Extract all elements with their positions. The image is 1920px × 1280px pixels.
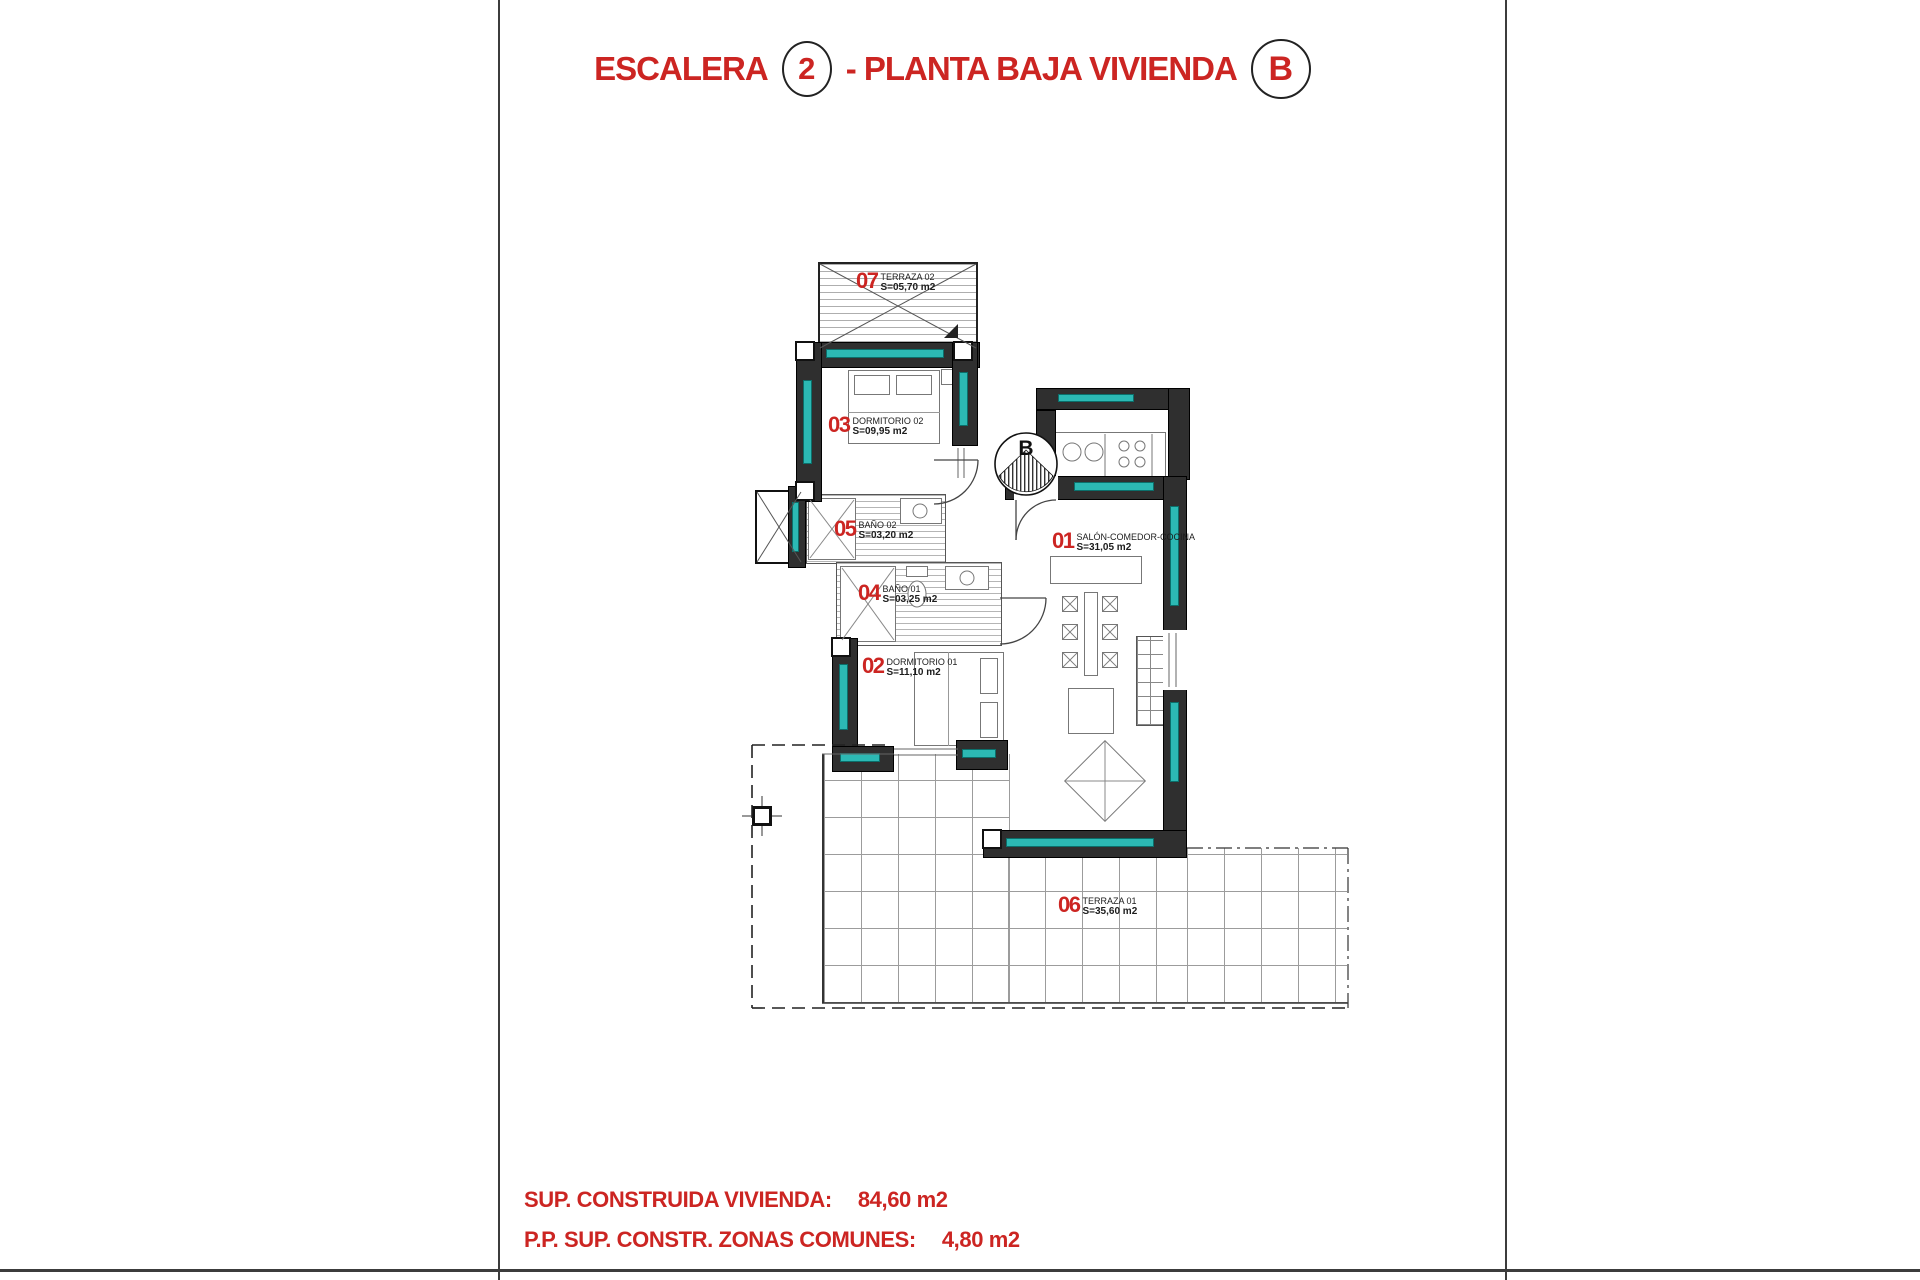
- pillar: [831, 637, 851, 657]
- pillow: [980, 702, 998, 738]
- pillar: [795, 481, 815, 501]
- room-number: 01: [1052, 532, 1073, 550]
- room-area: S=05,70 m2: [880, 282, 935, 294]
- terrace-01-tiles: [1187, 848, 1347, 1003]
- pillar: [953, 341, 973, 361]
- entrance-marker-letter: B: [1018, 437, 1033, 460]
- room-number: 04: [858, 584, 879, 602]
- area-summary: SUP. CONSTRUIDA VIVIENDA: 84,60 m2 P.P. …: [524, 1180, 1020, 1260]
- boundary-post: [752, 806, 772, 826]
- room-label-dormitorio-02: 03 DORMITORIO 02 S=09,95 m2: [828, 416, 923, 438]
- room-label-bano-02: 05 BAÑO 02 S=03,20 m2: [834, 520, 913, 542]
- wall-segment: [1168, 388, 1190, 480]
- bed-cover-line: [848, 412, 940, 413]
- summary-label: SUP. CONSTRUIDA VIVIENDA:: [524, 1187, 832, 1213]
- shelving-unit: [1136, 636, 1164, 726]
- room-name: BAÑO 01: [882, 584, 937, 594]
- coffee-table: [1068, 688, 1114, 734]
- entrance-door-opening: [1014, 476, 1058, 500]
- room-label-dormitorio-01: 02 DORMITORIO 01 S=11,10 m2: [862, 657, 957, 679]
- sheet-border-right: [1505, 0, 1507, 1280]
- kitchen-counter: [1042, 432, 1166, 478]
- room-label-terraza-02: 07 TERRAZA 02 S=05,70 m2: [856, 272, 935, 294]
- insulation-strip: [959, 372, 968, 426]
- pillar: [982, 829, 1002, 849]
- room-number: 06: [1058, 896, 1079, 914]
- insulation-strip: [1058, 394, 1134, 402]
- unit-letter-badge: B: [1251, 39, 1311, 99]
- room-number: 07: [856, 272, 877, 290]
- summary-label: P.P. SUP. CONSTR. ZONAS COMUNES:: [524, 1227, 916, 1253]
- wall-segment: [1036, 410, 1056, 476]
- room-name: BAÑO 02: [858, 520, 913, 530]
- room-label-bano-01: 04 BAÑO 01 S=03,25 m2: [858, 584, 937, 606]
- chair: [1062, 652, 1078, 668]
- insulation-strip: [826, 349, 944, 358]
- sheet-border-left: [498, 0, 500, 1280]
- title-prefix: ESCALERA: [594, 50, 768, 88]
- room-area: S=03,20 m2: [858, 530, 913, 542]
- insulation-strip: [803, 380, 812, 464]
- insulation-strip: [962, 749, 996, 758]
- terrace-01-tiles: [822, 754, 1010, 1003]
- washbasin-counter: [945, 566, 989, 590]
- pillow: [896, 375, 932, 395]
- pillow: [980, 658, 998, 694]
- window-opening: [1163, 630, 1187, 690]
- room-name: DORMITORIO 02: [852, 416, 923, 426]
- room-number: 05: [834, 520, 855, 538]
- window-opening: [952, 446, 978, 480]
- toilet-cistern: [906, 566, 928, 577]
- room-area: S=11,10 m2: [886, 667, 957, 679]
- insulation-strip: [1170, 702, 1179, 782]
- room-area: S=31,05 m2: [1076, 542, 1195, 554]
- summary-value: 84,60 m2: [858, 1187, 948, 1213]
- terrace-01-tiles: [1008, 858, 1187, 1003]
- summary-line-common-zones: P.P. SUP. CONSTR. ZONAS COMUNES: 4,80 m2: [524, 1220, 1020, 1260]
- chair: [1062, 596, 1078, 612]
- room-number: 02: [862, 657, 883, 675]
- insulation-strip: [1170, 506, 1179, 606]
- room-name: SALÓN-COMEDOR-COCINA: [1076, 532, 1195, 542]
- room-number: 03: [828, 416, 849, 434]
- room-label-salon: 01 SALÓN-COMEDOR-COCINA S=31,05 m2: [1052, 532, 1195, 554]
- summary-value: 4,80 m2: [942, 1227, 1020, 1253]
- floor-plan-sheet: ESCALERA 2 - PLANTA BAJA VIVIENDA B: [0, 0, 1920, 1280]
- insulation-strip: [1074, 482, 1154, 491]
- insulation-strip: [839, 664, 848, 730]
- insulation-strip: [792, 502, 799, 552]
- room-area: S=03,25 m2: [882, 594, 937, 606]
- title-middle: - PLANTA BAJA VIVIENDA: [846, 50, 1237, 88]
- summary-line-built-area: SUP. CONSTRUIDA VIVIENDA: 84,60 m2: [524, 1180, 1020, 1220]
- insulation-strip: [840, 753, 880, 762]
- pillar: [795, 341, 815, 361]
- pillow: [854, 375, 890, 395]
- chair: [1102, 596, 1118, 612]
- room-name: TERRAZA 02: [880, 272, 935, 282]
- kitchen-island: [1050, 556, 1142, 584]
- stair-number-badge: 2: [782, 41, 832, 97]
- insulation-strip: [1006, 838, 1154, 847]
- chair: [1102, 652, 1118, 668]
- rotated-table: [1064, 740, 1146, 822]
- room-name: DORMITORIO 01: [886, 657, 957, 667]
- room-label-terraza-01: 06 TERRAZA 01 S=35,60 m2: [1058, 896, 1137, 918]
- dining-table: [1084, 592, 1098, 676]
- plan-title: ESCALERA 2 - PLANTA BAJA VIVIENDA B: [500, 30, 1405, 108]
- sheet-border-bottom: [0, 1269, 1920, 1272]
- chair: [1102, 624, 1118, 640]
- room-area: S=09,95 m2: [852, 426, 923, 438]
- room-area: S=35,60 m2: [1082, 906, 1137, 918]
- room-name: TERRAZA 01: [1082, 896, 1137, 906]
- chair: [1062, 624, 1078, 640]
